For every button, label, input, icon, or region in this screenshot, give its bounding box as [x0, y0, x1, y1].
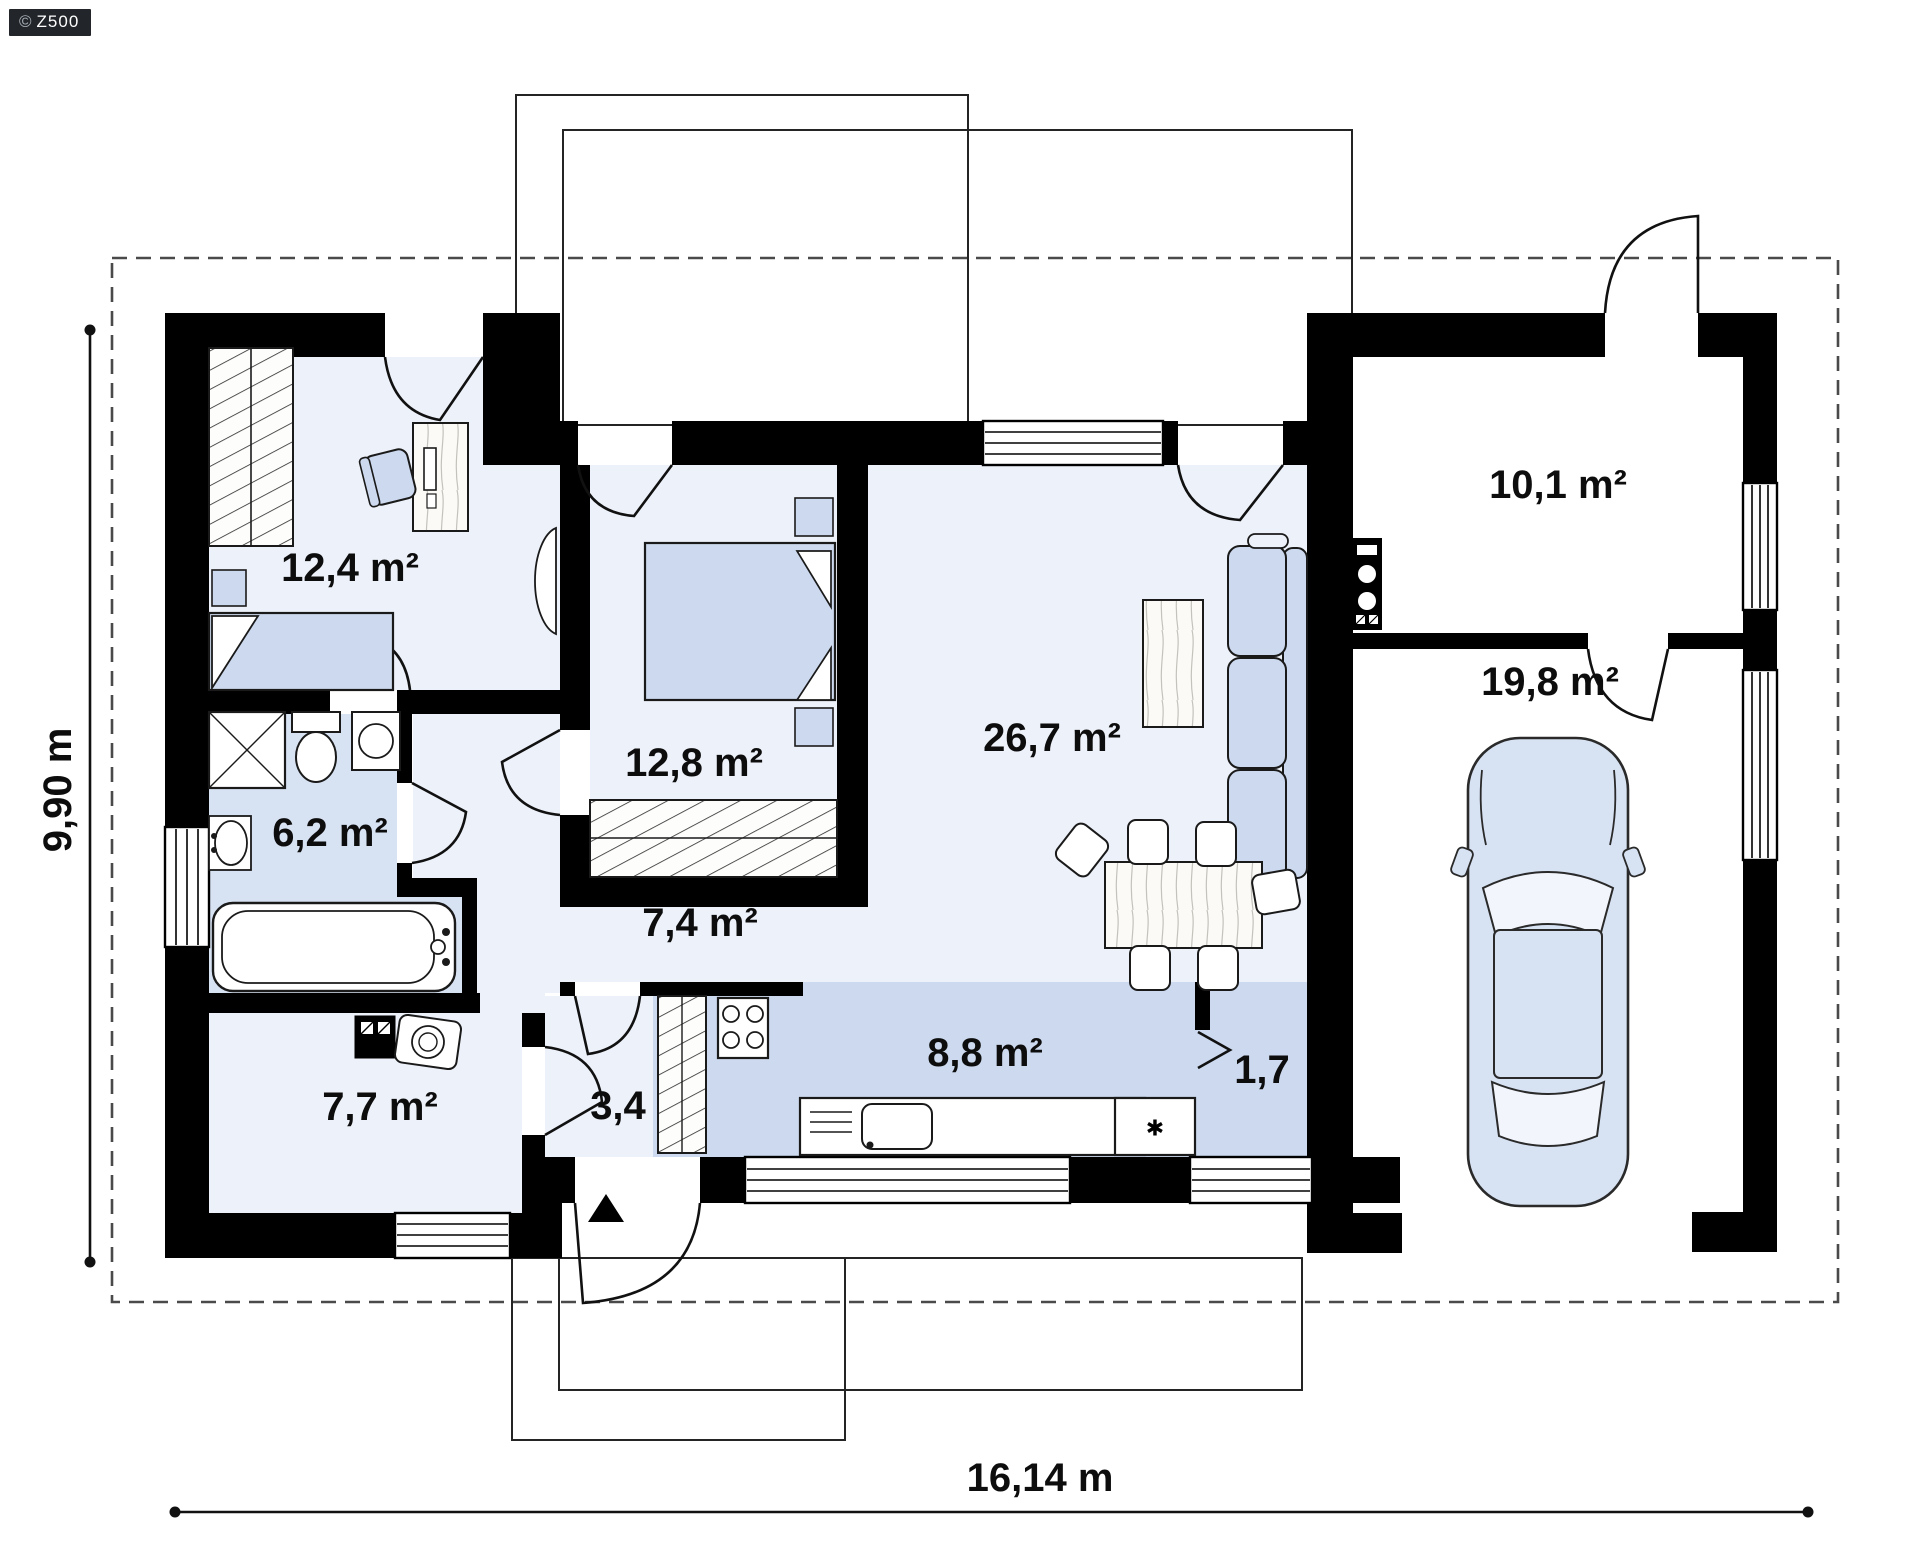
desk	[413, 423, 468, 531]
sofa	[1228, 534, 1307, 892]
nightstand	[795, 708, 833, 746]
room-label-living: 26,7 m²	[983, 716, 1121, 760]
nightstand	[795, 498, 833, 536]
depth-dimension: 9,90 m	[36, 728, 80, 853]
room-label-entry: 3,4	[590, 1084, 646, 1128]
window-garage-right-1	[1743, 483, 1777, 610]
room-label-utility: 7,7 m²	[322, 1085, 438, 1129]
chair	[1251, 868, 1301, 915]
room-label-tech: 10,1 m²	[1489, 463, 1627, 507]
chair	[1130, 946, 1170, 990]
room-label-bedroom: 12,8 m²	[625, 741, 763, 785]
freezer: ✱	[1115, 1098, 1195, 1155]
bathtub	[213, 903, 455, 991]
entrance-arrow	[588, 1194, 624, 1222]
stove	[718, 998, 768, 1058]
shower	[209, 712, 285, 788]
room-label-pantry: 1,7	[1234, 1048, 1290, 1092]
car-top-view	[1450, 738, 1647, 1206]
nightstand	[212, 570, 246, 606]
chair	[1196, 822, 1236, 866]
window-garage-right-2	[1743, 670, 1777, 860]
room-label-bathroom: 6,2 m²	[272, 811, 388, 855]
counter-sink	[800, 1098, 1145, 1155]
window-utility-bottom	[395, 1213, 510, 1258]
window-kitchen-bottom	[745, 1157, 1070, 1203]
room-label-garage: 19,8 m²	[1481, 660, 1619, 704]
toilet	[292, 712, 340, 782]
washing-machine	[394, 1014, 462, 1070]
tech-room-exterior-door	[1605, 216, 1698, 313]
window-bathroom-left	[165, 827, 209, 947]
floor-plan-canvas: ✱	[0, 0, 1920, 1568]
chair	[1198, 946, 1238, 990]
washer-column	[352, 712, 400, 770]
chair	[1128, 820, 1168, 864]
room-label-hallway: 7,4 m²	[642, 901, 758, 945]
floor-plan-page: ©Z500	[0, 0, 1920, 1568]
window-living-top	[983, 421, 1163, 465]
room-label-kitchen: 8,8 m²	[927, 1031, 1043, 1075]
dining-table	[1105, 862, 1262, 948]
window-pantry-bottom	[1190, 1157, 1312, 1203]
washbasin	[209, 816, 251, 870]
coffee-table	[1143, 600, 1203, 727]
room-label-cabinet: 12,4 m²	[281, 546, 419, 590]
width-dimension: 16,14 m	[967, 1456, 1114, 1500]
freezer-star-icon: ✱	[1146, 1116, 1164, 1141]
boiler-icon	[1352, 538, 1382, 630]
